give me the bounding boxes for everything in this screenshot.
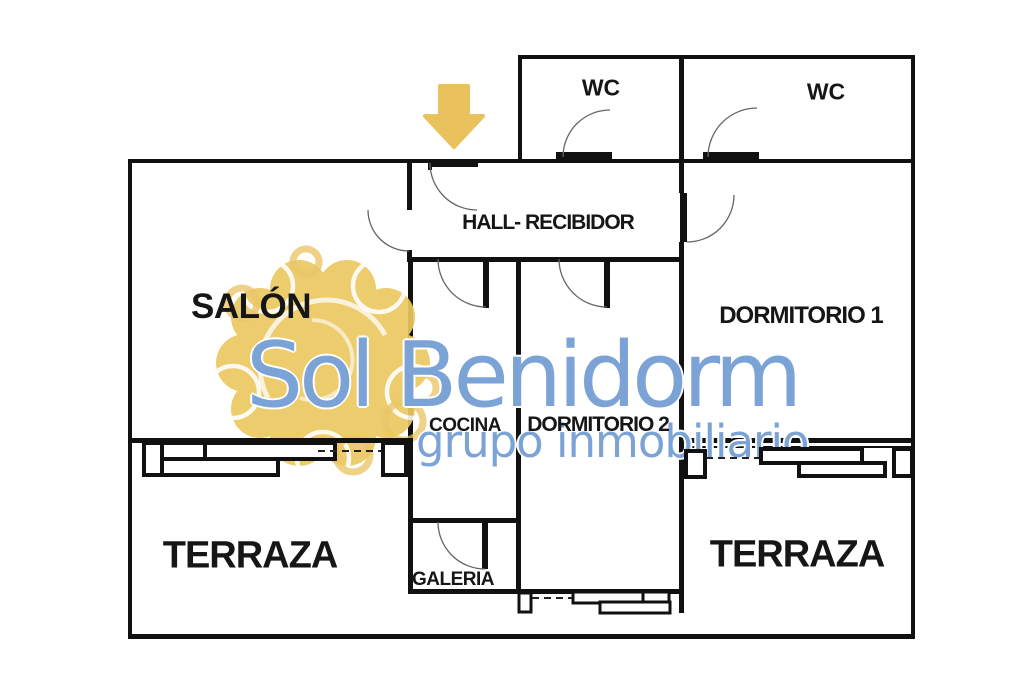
floor-plan: Sol Benidorm grupo inmobiliario WC WC HA… bbox=[0, 0, 1024, 694]
window-jamb-terraza-right-b bbox=[894, 449, 912, 476]
window-jamb-terraza-right-a bbox=[686, 451, 705, 477]
room-label-wc-left: WC bbox=[582, 75, 620, 102]
room-label-dormitorio-2: DORMITORIO 2 bbox=[527, 413, 669, 437]
room-label-salon: SALÓN bbox=[191, 287, 311, 327]
floorplan-overlay bbox=[0, 0, 1024, 694]
room-label-wc-right: WC bbox=[807, 79, 845, 106]
window-panel-salon bbox=[205, 443, 335, 459]
room-label-terraza-right: TERRAZA bbox=[710, 534, 885, 577]
window-panel-terraza-right-a bbox=[761, 449, 862, 463]
window-panel-terraza-right-b bbox=[799, 463, 885, 476]
room-label-cocina: COCINA bbox=[429, 415, 501, 437]
room-label-hall: HALL- RECIBIDOR bbox=[462, 211, 634, 235]
room-label-dormitorio-1: DORMITORIO 1 bbox=[719, 302, 883, 330]
room-label-terraza-left: TERRAZA bbox=[163, 535, 338, 578]
down-arrow-icon bbox=[425, 86, 483, 147]
window-jamb-salon bbox=[383, 443, 406, 475]
room-label-galeria: GALERIA bbox=[412, 569, 494, 591]
